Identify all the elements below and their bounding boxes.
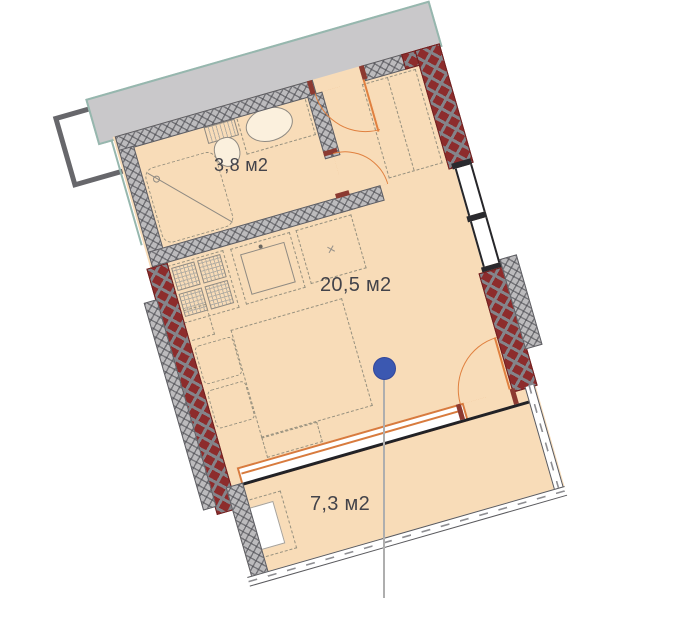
bathroom-area-label: 3,8 м2 (214, 155, 268, 176)
wardrobe-divider (387, 78, 414, 171)
floorplan-canvas: × (0, 0, 692, 631)
niche-x-mark: × (325, 240, 338, 259)
living-room-area-label: 20,5 м2 (320, 274, 391, 297)
pin-line (383, 376, 385, 598)
balcony-area-label: 7,3 м2 (310, 493, 370, 516)
location-pin-icon[interactable] (373, 357, 396, 380)
apartment-plan-rotated: × (16, 0, 613, 624)
shower-diagonal (147, 173, 232, 223)
shower-drain-icon (152, 175, 161, 184)
